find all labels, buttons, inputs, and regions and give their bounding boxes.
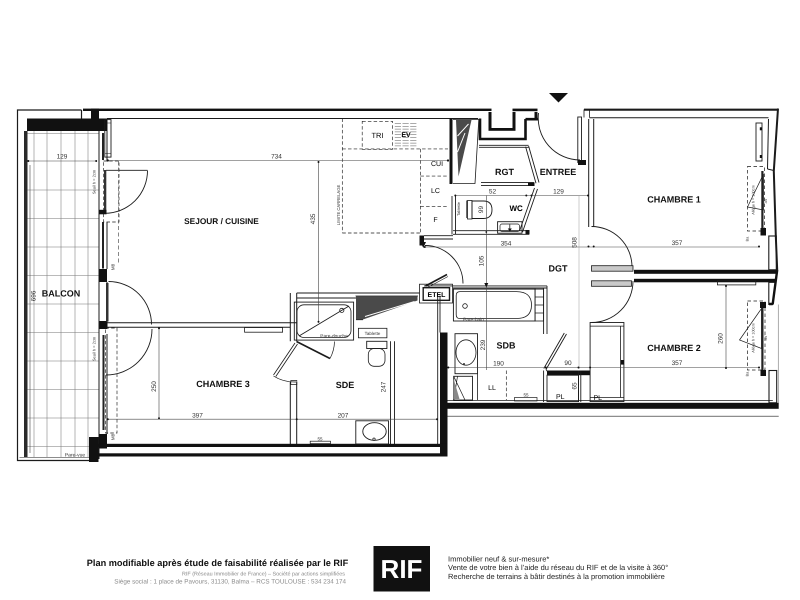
svg-text:Tablette: Tablette (365, 331, 381, 336)
svg-text:M8: M8 (111, 263, 116, 270)
svg-text:ETEL: ETEL (428, 292, 447, 299)
svg-text:Pare-vue: Pare-vue (65, 453, 86, 459)
svg-text:CHAMBRE 1: CHAMBRE 1 (647, 195, 701, 205)
svg-text:354: 354 (501, 241, 512, 248)
svg-text:260: 260 (718, 333, 725, 344)
svg-text:F: F (433, 217, 437, 224)
svg-text:508: 508 (572, 237, 579, 248)
svg-text:734: 734 (271, 154, 282, 161)
svg-text:397: 397 (192, 413, 203, 420)
svg-text:RIF: RIF (381, 554, 423, 584)
svg-text:M8: M8 (111, 433, 116, 440)
svg-text:SDE: SDE (336, 380, 355, 390)
svg-text:Allège h = 100cm: Allège h = 100cm (752, 185, 756, 214)
svg-text:357: 357 (672, 240, 683, 247)
svg-text:Seuil h = 2cm: Seuil h = 2cm (92, 169, 97, 194)
svg-text:LC: LC (431, 188, 440, 195)
svg-text:Seuil h = 2cm: Seuil h = 2cm (92, 336, 97, 361)
svg-text:357: 357 (672, 360, 683, 367)
svg-text:TRI: TRI (371, 131, 383, 140)
svg-text:435: 435 (310, 213, 317, 224)
svg-text:LIMITE CARRELAGE: LIMITE CARRELAGE (336, 185, 341, 226)
svg-text:ENTREE: ENTREE (540, 167, 577, 177)
svg-text:696: 696 (31, 290, 38, 301)
svg-text:90: 90 (564, 360, 572, 367)
svg-text:CHAMBRE 3: CHAMBRE 3 (196, 379, 250, 389)
svg-text:Vente de votre bien à l’aide d: Vente de votre bien à l’aide du réseau d… (448, 563, 668, 572)
svg-text:PL: PL (556, 394, 565, 401)
svg-text:Pare-bain: Pare-bain (463, 317, 484, 323)
svg-text:DGT: DGT (549, 264, 569, 274)
svg-text:Siège social : 1 place de Pavo: Siège social : 1 place de Pavours, 31130… (114, 579, 346, 586)
svg-text:129: 129 (553, 189, 564, 196)
svg-text:WC: WC (510, 204, 524, 213)
svg-text:EV: EV (401, 132, 411, 139)
svg-text:129: 129 (57, 154, 68, 161)
svg-text:Recherche de terrains à bâtir: Recherche de terrains à bâtir destinés à… (448, 572, 665, 581)
svg-text:250: 250 (151, 381, 158, 392)
svg-text:Plan modifiable après étude de: Plan modifiable après étude de faisabili… (87, 558, 349, 568)
svg-text:Immobilier neuf & sur-mesure*: Immobilier neuf & sur-mesure* (448, 554, 549, 563)
svg-text:99: 99 (478, 206, 485, 214)
svg-text:190: 190 (493, 361, 504, 368)
svg-text:207: 207 (338, 413, 349, 420)
svg-text:BALCON: BALCON (42, 289, 81, 299)
svg-text:Pare-douche: Pare-douche (320, 334, 348, 340)
svg-text:AV: AV (764, 198, 768, 203)
svg-text:RGT: RGT (495, 167, 515, 177)
svg-text:105: 105 (479, 255, 486, 266)
svg-text:65: 65 (572, 382, 579, 390)
svg-text:55: 55 (317, 437, 323, 442)
svg-text:CUI: CUI (431, 161, 443, 168)
svg-text:55: 55 (523, 393, 529, 398)
svg-text:RIF (Réseau Immobilier de Fran: RIF (Réseau Immobilier de France) – Soci… (182, 572, 345, 578)
svg-text:LL: LL (488, 385, 496, 392)
svg-text:SEJOUR / CUISINE: SEJOUR / CUISINE (184, 216, 259, 226)
svg-text:52: 52 (489, 189, 497, 196)
svg-text:PL: PL (594, 395, 603, 402)
svg-text:SDB: SDB (496, 341, 516, 351)
svg-text:Tablette: Tablette (456, 201, 461, 216)
svg-text:Allège h = 100cm: Allège h = 100cm (752, 323, 756, 352)
svg-text:CHAMBRE 2: CHAMBRE 2 (647, 343, 701, 353)
svg-text:239: 239 (480, 339, 487, 350)
svg-text:AV: AV (764, 335, 768, 340)
svg-text:247: 247 (381, 381, 388, 392)
